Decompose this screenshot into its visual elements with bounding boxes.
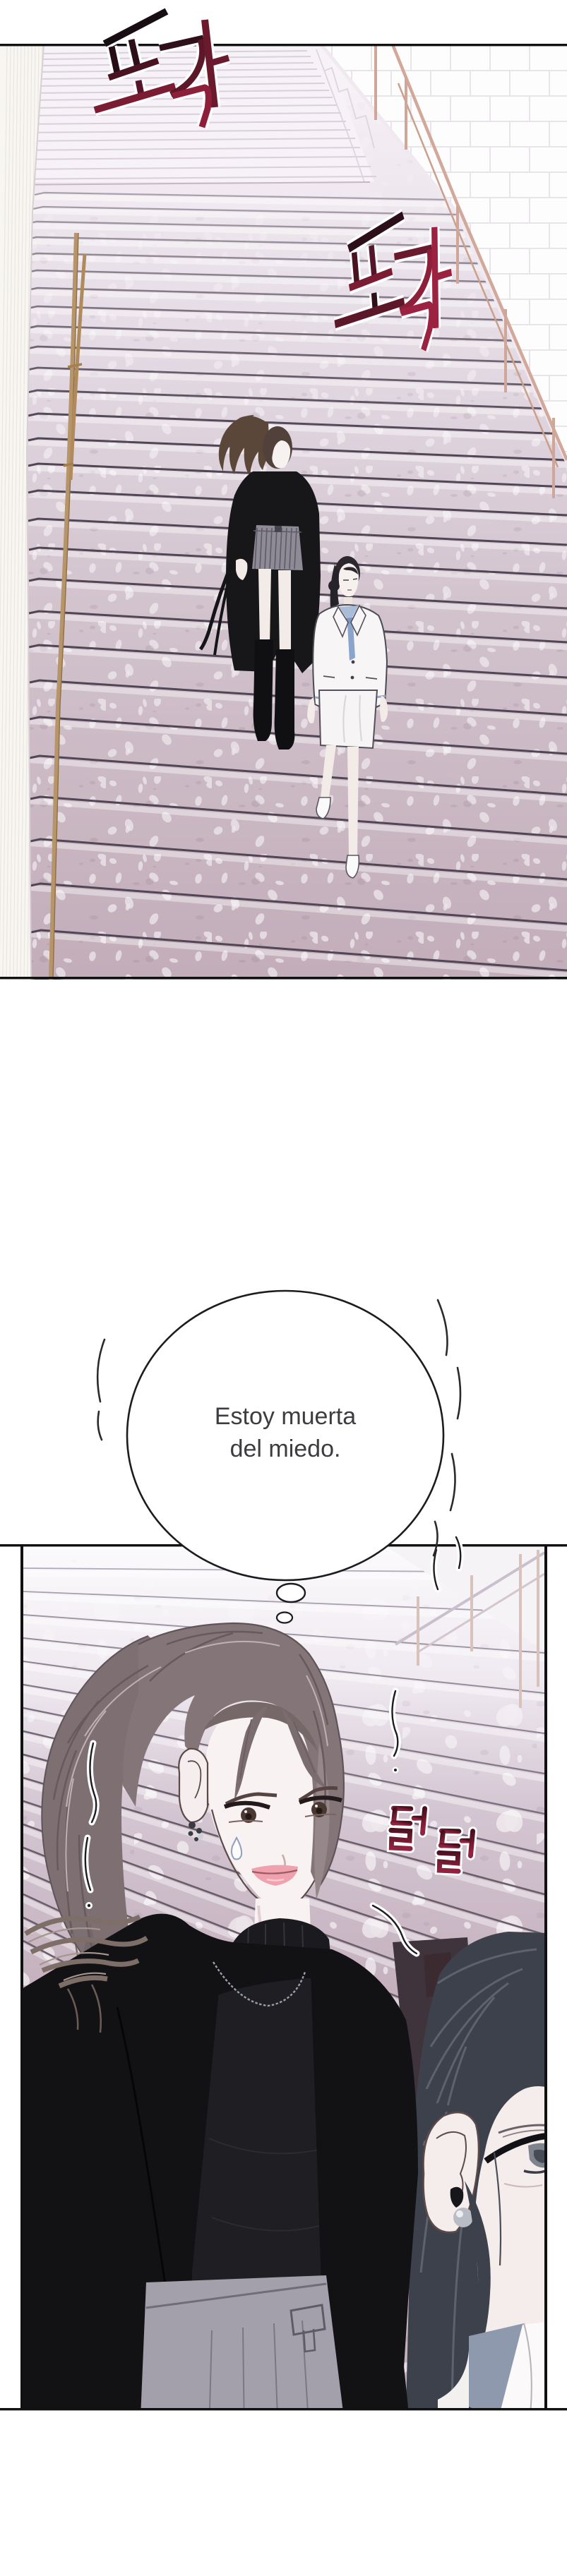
svg-text:Estoy muerta: Estoy muerta <box>215 1403 356 1430</box>
svg-text:del miedo.: del miedo. <box>230 1436 341 1462</box>
